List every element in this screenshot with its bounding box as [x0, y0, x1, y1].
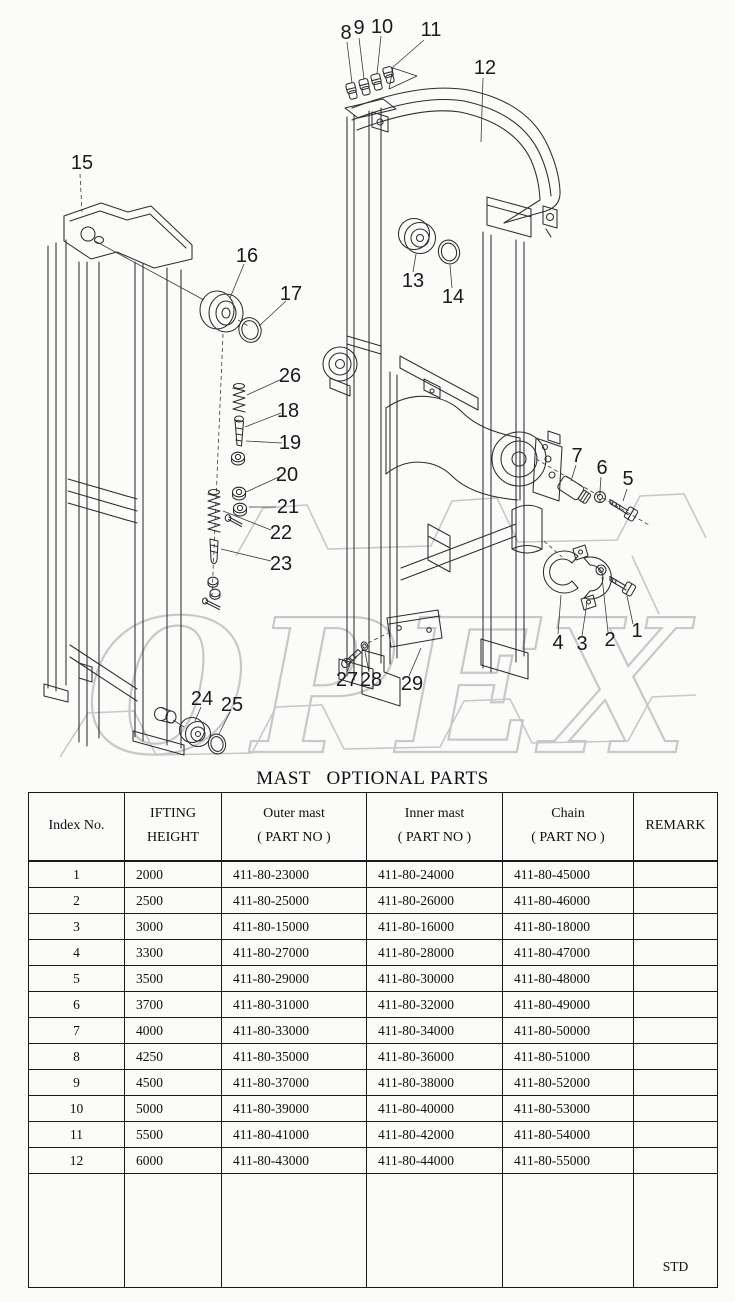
cell-index: 9 — [29, 1069, 125, 1095]
carriage-roller-right — [492, 431, 562, 501]
cell-inner-part: 411-80-26000 — [367, 887, 503, 913]
header-index-label: Index No. — [29, 814, 124, 838]
part-7-pin — [557, 475, 593, 506]
cell-chain-part: 411-80-52000 — [503, 1069, 634, 1095]
table-row: 5 3500 411-80-29000 411-80-30000 411-80-… — [29, 965, 718, 991]
cell-height: 3000 — [125, 913, 222, 939]
callout-26: 26 — [279, 366, 301, 386]
callout-20: 20 — [276, 465, 298, 485]
cell-index: 5 — [29, 965, 125, 991]
cell-height: 3700 — [125, 991, 222, 1017]
cell-chain-part: 411-80-46000 — [503, 887, 634, 913]
callout-18: 18 — [277, 401, 299, 421]
cell-index: 8 — [29, 1043, 125, 1069]
cell-index: 10 — [29, 1095, 125, 1121]
cell-outer-part: 411-80-35000 — [222, 1043, 367, 1069]
cell-height: 2000 — [125, 861, 222, 888]
cell-chain-part: 411-80-18000 — [503, 913, 634, 939]
cell-index: 7 — [29, 1017, 125, 1043]
header-outer-line2: ( PART NO ) — [222, 826, 366, 850]
callout-29: 29 — [401, 674, 423, 694]
table-row: 2 2500 411-80-25000 411-80-26000 411-80-… — [29, 887, 718, 913]
cell-outer-part: 411-80-15000 — [222, 913, 367, 939]
table-row: 10 5000 411-80-39000 411-80-40000 411-80… — [29, 1095, 718, 1121]
part-5-bolt — [610, 500, 638, 522]
cell-remark — [634, 1043, 718, 1069]
table-filler-cell — [367, 1173, 503, 1287]
cell-inner-part: 411-80-38000 — [367, 1069, 503, 1095]
table-row: 8 4250 411-80-35000 411-80-36000 411-80-… — [29, 1043, 718, 1069]
callout-13: 13 — [402, 271, 424, 291]
cell-inner-part: 411-80-16000 — [367, 913, 503, 939]
watermark-gear-teeth-top — [236, 494, 706, 556]
cell-chain-part: 411-80-54000 — [503, 1121, 634, 1147]
table-row: 4 3300 411-80-27000 411-80-28000 411-80-… — [29, 939, 718, 965]
part-18-19-bolt — [235, 416, 244, 446]
cell-remark — [634, 991, 718, 1017]
header-height-line2: HEIGHT — [125, 826, 221, 850]
cell-remark — [634, 887, 718, 913]
table-row: 1 2000 411-80-23000 411-80-24000 411-80-… — [29, 861, 718, 888]
cell-index: 11 — [29, 1121, 125, 1147]
cell-remark — [634, 939, 718, 965]
table-row: 9 4500 411-80-37000 411-80-38000 411-80-… — [29, 1069, 718, 1095]
cell-index: 6 — [29, 991, 125, 1017]
table-title: MAST OPTIONAL PARTS — [28, 768, 717, 790]
cell-inner-part: 411-80-36000 — [367, 1043, 503, 1069]
cell-inner-part: 411-80-40000 — [367, 1095, 503, 1121]
cell-index: 1 — [29, 861, 125, 888]
cell-outer-part: 411-80-27000 — [222, 939, 367, 965]
part-16-roller — [200, 291, 243, 332]
carriage-roller-left — [323, 347, 357, 396]
callout-19: 19 — [279, 433, 301, 453]
table-filler-row: STD — [29, 1173, 718, 1287]
cell-height: 4500 — [125, 1069, 222, 1095]
part-10-clip — [370, 73, 383, 91]
cell-remark — [634, 1095, 718, 1121]
cell-height: 4000 — [125, 1017, 222, 1043]
callout-14: 14 — [442, 287, 464, 307]
cell-inner-part: 411-80-30000 — [367, 965, 503, 991]
cell-outer-part: 411-80-39000 — [222, 1095, 367, 1121]
part-9-clip — [358, 78, 371, 96]
cell-height: 6000 — [125, 1147, 222, 1173]
cell-outer-part: 411-80-37000 — [222, 1069, 367, 1095]
cell-chain-part: 411-80-50000 — [503, 1017, 634, 1043]
cell-index: 12 — [29, 1147, 125, 1173]
callout-9: 9 — [353, 18, 364, 38]
part-6-washer — [595, 492, 606, 503]
optional-parts-table: Index No. IFTING HEIGHT Outer mast ( PAR… — [28, 792, 718, 1288]
header-outer-line1: Outer mast — [222, 802, 366, 826]
cell-height: 5000 — [125, 1095, 222, 1121]
callout-15: 15 — [71, 153, 93, 173]
callout-10: 10 — [371, 17, 393, 37]
callout-3: 3 — [576, 634, 587, 654]
cell-index: 2 — [29, 887, 125, 913]
callout-22: 22 — [270, 523, 292, 543]
header-inner-line1: Inner mast — [367, 802, 502, 826]
cell-remark — [634, 913, 718, 939]
part-2-washer — [596, 565, 606, 575]
header-outer-mast: Outer mast ( PART NO ) — [222, 793, 367, 861]
cell-inner-part: 411-80-42000 — [367, 1121, 503, 1147]
callout-16: 16 — [236, 246, 258, 266]
part-13-bearing — [399, 219, 436, 254]
cell-inner-part: 411-80-34000 — [367, 1017, 503, 1043]
catalog-page: OPEX — [0, 0, 735, 1302]
cell-inner-part: 411-80-32000 — [367, 991, 503, 1017]
callout-6: 6 — [596, 458, 607, 478]
cell-remark — [634, 1147, 718, 1173]
table-filler-cell — [222, 1173, 367, 1287]
cell-inner-part: 411-80-24000 — [367, 861, 503, 888]
header-index: Index No. — [29, 793, 125, 861]
callout-4: 4 — [552, 633, 563, 653]
cell-chain-part: 411-80-53000 — [503, 1095, 634, 1121]
cell-inner-part: 411-80-28000 — [367, 939, 503, 965]
cell-chain-part: 411-80-51000 — [503, 1043, 634, 1069]
table-row: 11 5500 411-80-41000 411-80-42000 411-80… — [29, 1121, 718, 1147]
callout-27: 27 — [336, 670, 358, 690]
cell-inner-part: 411-80-44000 — [367, 1147, 503, 1173]
mast-top-beam — [352, 88, 560, 237]
cell-outer-part: 411-80-29000 — [222, 965, 367, 991]
header-remark: REMARK — [634, 793, 718, 861]
part-8-clip — [345, 82, 358, 100]
cell-height: 2500 — [125, 887, 222, 913]
callout-23: 23 — [270, 554, 292, 574]
construction-lines — [80, 174, 649, 643]
cell-chain-part: 411-80-55000 — [503, 1147, 634, 1173]
cell-remark — [634, 861, 718, 888]
table-row: 3 3000 411-80-15000 411-80-16000 411-80-… — [29, 913, 718, 939]
cell-height: 3500 — [125, 965, 222, 991]
cell-outer-part: 411-80-43000 — [222, 1147, 367, 1173]
cell-chain-part: 411-80-47000 — [503, 939, 634, 965]
cell-remark — [634, 965, 718, 991]
part-14-ring — [436, 238, 462, 267]
table-row: 6 3700 411-80-31000 411-80-32000 411-80-… — [29, 991, 718, 1017]
header-chain-line2: ( PART NO ) — [503, 826, 633, 850]
cell-height: 4250 — [125, 1043, 222, 1069]
cell-chain-part: 411-80-48000 — [503, 965, 634, 991]
cell-remark — [634, 1069, 718, 1095]
callout-17: 17 — [280, 284, 302, 304]
cell-height: 3300 — [125, 939, 222, 965]
table-filler-cell — [503, 1173, 634, 1287]
callout-7: 7 — [571, 446, 582, 466]
cell-index: 3 — [29, 913, 125, 939]
callout-5: 5 — [622, 469, 633, 489]
cell-index: 4 — [29, 939, 125, 965]
cell-outer-part: 411-80-25000 — [222, 887, 367, 913]
callout-1: 1 — [631, 621, 642, 641]
part-20-21-nuts — [225, 452, 246, 526]
header-inner-line2: ( PART NO ) — [367, 826, 502, 850]
callout-2: 2 — [604, 630, 615, 650]
callout-8: 8 — [340, 23, 351, 43]
header-lifting-height: IFTING HEIGHT — [125, 793, 222, 861]
header-remark-label: REMARK — [634, 814, 717, 838]
cell-outer-part: 411-80-31000 — [222, 991, 367, 1017]
callout-21: 21 — [277, 497, 299, 517]
cell-chain-part: 411-80-49000 — [503, 991, 634, 1017]
header-chain-line1: Chain — [503, 802, 633, 826]
table-row: 7 4000 411-80-33000 411-80-34000 411-80-… — [29, 1017, 718, 1043]
remark-std-value: STD — [634, 1173, 718, 1287]
table-row: 12 6000 411-80-43000 411-80-44000 411-80… — [29, 1147, 718, 1173]
header-chain: Chain ( PART NO ) — [503, 793, 634, 861]
callout-12: 12 — [474, 58, 496, 78]
callout-24: 24 — [191, 689, 213, 709]
callout-11: 11 — [421, 20, 442, 40]
table-filler-cell — [29, 1173, 125, 1287]
cell-height: 5500 — [125, 1121, 222, 1147]
table-header-row: Index No. IFTING HEIGHT Outer mast ( PAR… — [29, 793, 718, 861]
cell-outer-part: 411-80-41000 — [222, 1121, 367, 1147]
cell-remark — [634, 1017, 718, 1043]
header-inner-mast: Inner mast ( PART NO ) — [367, 793, 503, 861]
table-filler-cell — [125, 1173, 222, 1287]
cell-remark — [634, 1121, 718, 1147]
part-26-spring — [233, 384, 245, 413]
header-height-line1: IFTING — [125, 802, 221, 826]
cell-chain-part: 411-80-45000 — [503, 861, 634, 888]
part-17-ring — [236, 315, 265, 346]
callout-25: 25 — [221, 695, 243, 715]
callout-28: 28 — [360, 670, 382, 690]
part-22-spring — [208, 490, 220, 533]
watermark-text: OPEX — [86, 578, 695, 796]
cell-outer-part: 411-80-23000 — [222, 861, 367, 888]
cell-outer-part: 411-80-33000 — [222, 1017, 367, 1043]
